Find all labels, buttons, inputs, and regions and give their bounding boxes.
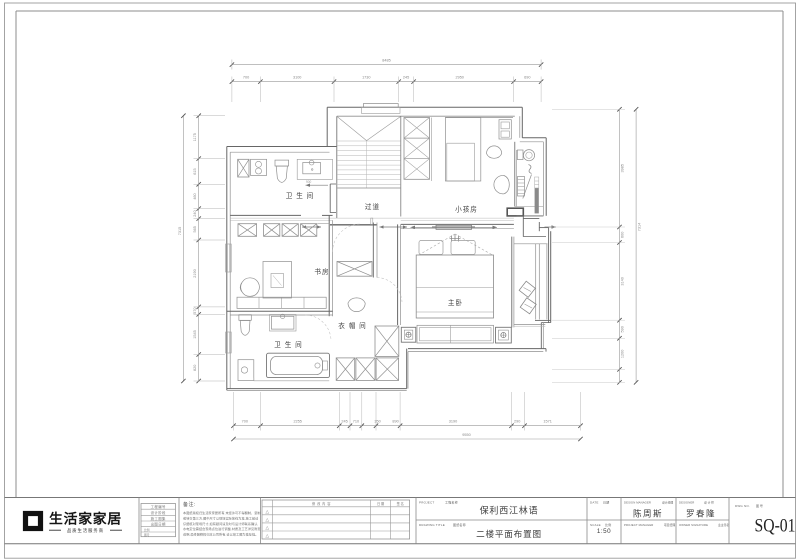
svg-text:1175: 1175 <box>193 133 197 141</box>
svg-text:350: 350 <box>374 420 380 424</box>
svg-text:陈周斯: 陈周斯 <box>633 509 663 519</box>
svg-text:二楼平面布置图: 二楼平面布置图 <box>476 528 542 539</box>
svg-text:8485: 8485 <box>382 59 390 63</box>
svg-text:700: 700 <box>242 420 248 424</box>
svg-text:△: △ <box>266 509 270 514</box>
svg-text:品质生活服务商: 品质生活服务商 <box>67 527 104 534</box>
svg-text:DWG NO.: DWG NO. <box>735 504 750 508</box>
svg-text:245: 245 <box>341 420 347 424</box>
svg-text:DATE: DATE <box>590 501 599 505</box>
svg-text:3100: 3100 <box>293 76 301 80</box>
svg-text:OWNER SIGNATURE: OWNER SIGNATURE <box>679 523 708 527</box>
svg-text:项目经理: 项目经理 <box>664 523 675 527</box>
svg-text:修 改 内 容: 修 改 内 容 <box>312 501 331 506</box>
svg-text:罗春隆: 罗春隆 <box>686 509 716 519</box>
svg-text:615: 615 <box>193 168 197 174</box>
svg-text:△: △ <box>266 517 270 522</box>
svg-text:仔细核对现场尺寸,如有疑问请及时与设计师联系确认,: 仔细核对现场尺寸,如有疑问请及时与设计师联系确认, <box>183 521 258 526</box>
svg-text:设计经理: 设计经理 <box>662 501 673 505</box>
svg-text:1:50: 1:50 <box>597 528 611 535</box>
svg-text:SQ-01: SQ-01 <box>755 517 796 537</box>
svg-text:书房: 书房 <box>314 267 329 276</box>
svg-text:△: △ <box>266 533 270 538</box>
svg-text:700: 700 <box>243 76 249 80</box>
svg-text:本图纸版权归生活家家居所有,未经许可不得翻制、复制: 本图纸版权归生活家家居所有,未经许可不得翻制、复制 <box>183 510 261 515</box>
svg-text:460: 460 <box>193 193 197 199</box>
svg-text:签 名: 签 名 <box>397 501 404 506</box>
svg-text:2255: 2255 <box>293 420 301 424</box>
svg-text:PROJECT MANAGER: PROJECT MANAGER <box>624 523 653 527</box>
svg-text:900: 900 <box>306 180 312 184</box>
svg-text:710: 710 <box>353 420 359 424</box>
svg-text:主卧: 主卧 <box>448 298 463 307</box>
svg-text:PROJECT: PROJECT <box>419 501 434 505</box>
svg-text:说明,最终解释权归本公司所有,请以竣工图为准存档。: 说明,最终解释权归本公司所有,请以竣工图为准存档。 <box>183 531 258 536</box>
svg-text:过道: 过道 <box>365 202 380 211</box>
svg-text:290: 290 <box>514 420 520 424</box>
svg-text:1730: 1730 <box>362 76 370 80</box>
svg-text:业主签名: 业主签名 <box>718 523 729 527</box>
svg-text:1571: 1571 <box>543 420 551 424</box>
svg-text:890: 890 <box>392 420 398 424</box>
svg-text:600: 600 <box>621 232 625 238</box>
svg-text:820: 820 <box>193 365 197 371</box>
svg-text:设计阶段: 设计阶段 <box>151 510 166 515</box>
svg-text:2190: 2190 <box>193 269 197 277</box>
svg-text:△: △ <box>266 525 270 530</box>
svg-text:3985: 3985 <box>621 164 625 172</box>
svg-text:保利西江林语: 保利西江林语 <box>480 505 539 516</box>
svg-text:生活家家居: 生活家家居 <box>49 511 122 527</box>
svg-text:2950: 2950 <box>455 76 463 80</box>
svg-text:设 计 师: 设 计 师 <box>704 501 714 505</box>
svg-text:690: 690 <box>524 76 530 80</box>
svg-text:3140: 3140 <box>621 277 625 285</box>
svg-text:工程名称: 工程名称 <box>445 500 458 505</box>
svg-text:590: 590 <box>621 326 625 332</box>
svg-text:图号: 图号 <box>144 533 150 537</box>
svg-text:7315: 7315 <box>178 227 182 235</box>
svg-text:日 期: 日 期 <box>377 501 384 506</box>
svg-text:DESIGNER: DESIGNER <box>679 501 694 505</box>
svg-text:小孩房: 小孩房 <box>455 205 478 214</box>
svg-text:或转交第三方,图中尺寸以现场实际放线为准,施工前请: 或转交第三方,图中尺寸以现场实际放线为准,施工前请 <box>183 516 258 521</box>
svg-text:图纸名称: 图纸名称 <box>453 522 466 527</box>
svg-text:日期: 日期 <box>603 500 609 505</box>
svg-text:衣 帽 间: 衣 帽 间 <box>338 321 366 330</box>
svg-text:卫 生 间: 卫 生 间 <box>286 191 314 200</box>
svg-text:1545: 1545 <box>193 330 197 338</box>
svg-text:3190: 3190 <box>449 420 457 424</box>
svg-text:DESIGN MANAGER: DESIGN MANAGER <box>624 501 651 505</box>
svg-text:出图日期: 出图日期 <box>151 522 166 527</box>
svg-text:240: 240 <box>193 210 197 216</box>
svg-text:245: 245 <box>403 76 409 80</box>
svg-text:水电定位需结合现场点位进行调整,材质及工艺详见附页: 水电定位需结合现场点位进行调整,材质及工艺详见附页 <box>183 526 261 531</box>
svg-text:7314: 7314 <box>638 223 642 231</box>
svg-text:SCALE: SCALE <box>590 523 601 527</box>
svg-text:570: 570 <box>193 308 197 314</box>
svg-text:DRAWING TITLE: DRAWING TITLE <box>419 523 445 527</box>
svg-text:9550: 9550 <box>462 433 470 437</box>
svg-text:比例: 比例 <box>144 528 150 532</box>
svg-text:卫 生 间: 卫 生 间 <box>274 340 302 349</box>
svg-text:比例: 比例 <box>605 522 611 527</box>
svg-text:施工图集: 施工图集 <box>151 516 166 521</box>
svg-text:工程编号: 工程编号 <box>151 504 166 509</box>
svg-text:图 号: 图 号 <box>756 503 763 508</box>
svg-text:备注:: 备注: <box>183 501 196 508</box>
svg-text:1200: 1200 <box>621 350 625 358</box>
svg-text:565: 565 <box>193 226 197 232</box>
